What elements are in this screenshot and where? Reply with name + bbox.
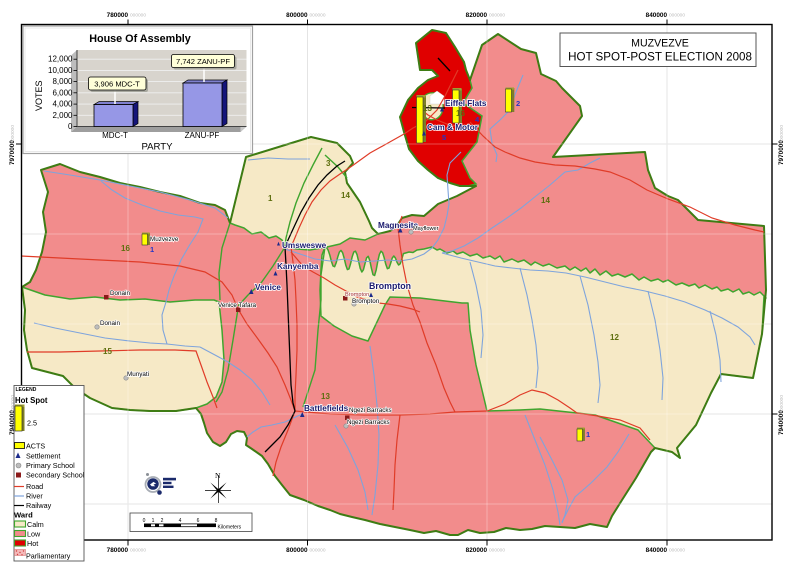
svg-text:4: 4	[179, 518, 182, 524]
svg-text:000000: 000000	[310, 548, 326, 554]
svg-text:13: 13	[321, 392, 330, 401]
svg-text:Cam & Motor: Cam & Motor	[427, 123, 479, 132]
svg-text:Donain: Donain	[100, 320, 120, 327]
svg-text:MDC-T: MDC-T	[102, 131, 128, 140]
svg-text:8,000: 8,000	[52, 77, 73, 86]
svg-text:MUZVEZVE: MUZVEZVE	[631, 38, 689, 50]
svg-text:ACTS: ACTS	[26, 442, 45, 451]
svg-text:14: 14	[541, 196, 550, 205]
svg-text:7940000: 7940000	[778, 410, 785, 435]
svg-text:4,000: 4,000	[52, 100, 73, 109]
svg-text:Battlefields: Battlefields	[304, 404, 349, 413]
svg-text:000000: 000000	[489, 13, 505, 19]
svg-text:16: 16	[121, 244, 130, 253]
svg-text:Muzvezve: Muzvezve	[150, 236, 179, 243]
svg-text:000000: 000000	[779, 125, 785, 141]
svg-text:Settlement: Settlement	[26, 452, 60, 461]
svg-text:780000: 780000	[107, 547, 129, 554]
svg-text:Brompton: Brompton	[352, 298, 380, 305]
svg-text:Road: Road	[26, 482, 43, 491]
svg-text:7,742 ZANU-PF: 7,742 ZANU-PF	[176, 57, 230, 66]
svg-text:000000: 000000	[669, 13, 685, 19]
svg-text:LEGEND: LEGEND	[16, 387, 37, 393]
svg-text:Calm: Calm	[27, 520, 44, 529]
svg-text:2: 2	[161, 518, 164, 524]
svg-text:000000: 000000	[669, 548, 685, 554]
svg-text:Hot: Hot	[27, 539, 38, 548]
svg-text:Kanyemba: Kanyemba	[277, 262, 319, 271]
svg-text:Ngezi Barracks: Ngezi Barracks	[347, 419, 390, 426]
svg-text:Ward: Ward	[14, 511, 33, 520]
svg-text:820000: 820000	[466, 12, 488, 19]
svg-text:Eiffel Flats: Eiffel Flats	[445, 99, 487, 108]
svg-text:Brompton: Brompton	[369, 281, 411, 291]
svg-text:15: 15	[103, 347, 112, 356]
svg-text:VOTES: VOTES	[34, 80, 44, 111]
svg-text:Secondary School: Secondary School	[26, 471, 85, 480]
svg-text:Brompton: Brompton	[345, 292, 369, 298]
svg-text:Kilometers: Kilometers	[218, 525, 242, 531]
svg-text:800000: 800000	[286, 12, 308, 19]
svg-text:840000: 840000	[646, 547, 668, 554]
svg-text:5: 5	[442, 133, 446, 142]
svg-text:6,000: 6,000	[52, 88, 73, 97]
svg-text:Ngezi Barracks: Ngezi Barracks	[349, 407, 392, 414]
svg-text:N: N	[215, 471, 221, 480]
svg-text:7970000: 7970000	[778, 140, 785, 165]
svg-text:16: 16	[456, 109, 465, 118]
svg-text:800000: 800000	[286, 547, 308, 554]
svg-text:000000: 000000	[130, 13, 146, 19]
svg-text:1: 1	[150, 245, 154, 254]
svg-text:7970000: 7970000	[9, 140, 16, 165]
svg-text:12,000: 12,000	[48, 55, 73, 64]
svg-text:Railway: Railway	[26, 501, 52, 510]
svg-text:780000: 780000	[107, 12, 129, 19]
svg-text:1: 1	[586, 430, 590, 439]
svg-text:Munyati: Munyati	[127, 371, 149, 378]
svg-text:Umsweswe: Umsweswe	[282, 241, 327, 250]
svg-text:14: 14	[341, 191, 350, 200]
svg-text:000000: 000000	[779, 395, 785, 411]
svg-text:2: 2	[516, 99, 520, 108]
svg-text:1: 1	[268, 194, 273, 203]
svg-text:Parliamentary: Parliamentary	[26, 552, 71, 561]
svg-text:PARTY: PARTY	[141, 142, 173, 153]
svg-text:000000: 000000	[310, 13, 326, 19]
svg-text:0: 0	[143, 518, 146, 524]
svg-text:8: 8	[215, 518, 218, 524]
svg-text:6: 6	[197, 518, 200, 524]
svg-text:Mayflower: Mayflower	[413, 226, 439, 232]
svg-text:Primary School: Primary School	[26, 461, 75, 470]
svg-text:HOT SPOT-POST ELECTION 2008: HOT SPOT-POST ELECTION 2008	[568, 51, 752, 64]
svg-text:820000: 820000	[466, 547, 488, 554]
svg-text:House Of Assembly: House Of Assembly	[89, 33, 191, 45]
svg-text:2.5: 2.5	[27, 419, 37, 428]
svg-text:1: 1	[152, 518, 155, 524]
svg-text:000000: 000000	[10, 125, 16, 141]
svg-text:3,906 MDC-T: 3,906 MDC-T	[94, 80, 140, 89]
svg-text:000000: 000000	[489, 548, 505, 554]
svg-text:Venice Tafara: Venice Tafara	[218, 302, 257, 309]
svg-text:0: 0	[68, 122, 73, 131]
svg-text:840000: 840000	[646, 12, 668, 19]
svg-text:000000: 000000	[130, 548, 146, 554]
svg-text:Hot Spot: Hot Spot	[15, 396, 48, 405]
svg-text:Donain: Donain	[110, 290, 130, 297]
svg-text:12: 12	[610, 333, 619, 342]
svg-text:13: 13	[423, 104, 432, 113]
svg-text:ZANU-PF: ZANU-PF	[185, 131, 220, 140]
svg-text:Low: Low	[27, 530, 41, 539]
svg-text:Venice: Venice	[255, 283, 281, 292]
svg-text:10,000: 10,000	[48, 66, 73, 75]
svg-text:3: 3	[326, 159, 331, 168]
svg-text:2,000: 2,000	[52, 111, 73, 120]
svg-text:River: River	[26, 492, 43, 501]
